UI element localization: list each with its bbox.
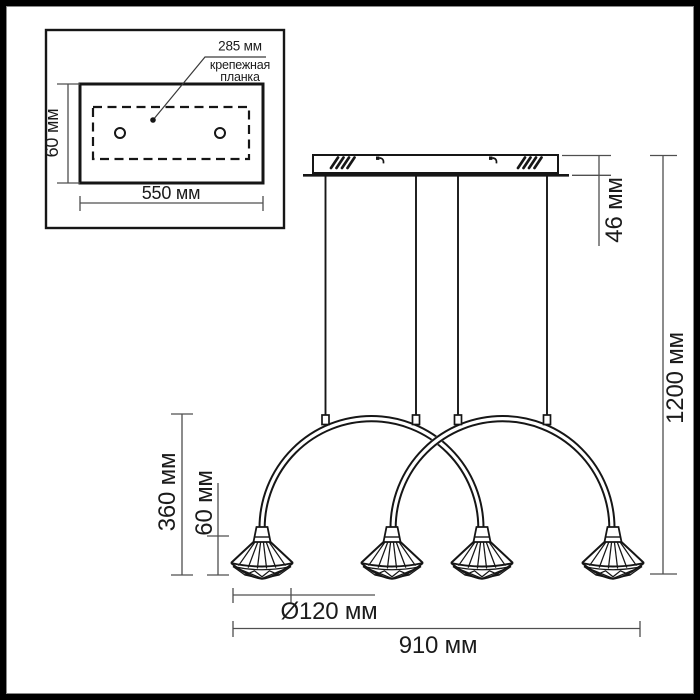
mounting-plate: [80, 84, 263, 183]
technical-drawing-canvas: 285 мм крепежная планка 60 мм 550 мм 46 …: [0, 0, 700, 700]
inset-plate-name-label: крепежная планка: [210, 59, 270, 83]
arc-tubes: [260, 416, 615, 528]
lampshades: [231, 527, 644, 579]
inset-plate-height-label: 60 мм: [43, 109, 61, 158]
lampshade-1: [231, 527, 293, 579]
dim-shade-diameter-label: Ø120 мм: [281, 600, 378, 624]
lampshade-4: [582, 527, 644, 579]
screw-hole-left: [115, 128, 125, 138]
dim-arc-drop-label: 360 мм: [156, 453, 180, 532]
lampshade-3: [451, 527, 513, 579]
suspension-cables: [322, 176, 551, 425]
leader-dot: [150, 117, 156, 123]
canopy: [303, 155, 569, 175]
dim-overall-height-label: 1200 мм: [664, 332, 688, 424]
screw-hole-right: [215, 128, 225, 138]
inset-plate-length-label: 550 мм: [142, 184, 201, 202]
dim-shade-height-label: 60 мм: [193, 470, 217, 535]
arc-right: [391, 416, 615, 528]
inset-plate-width-label: 285 мм: [218, 39, 262, 53]
dim-canopy-height-label: 46 мм: [603, 177, 627, 242]
lampshade-2: [361, 527, 423, 579]
plate-name-line2: планка: [210, 71, 270, 83]
fixture-diagram: [0, 0, 700, 700]
dim-overall-width-label: 910 мм: [399, 634, 478, 658]
